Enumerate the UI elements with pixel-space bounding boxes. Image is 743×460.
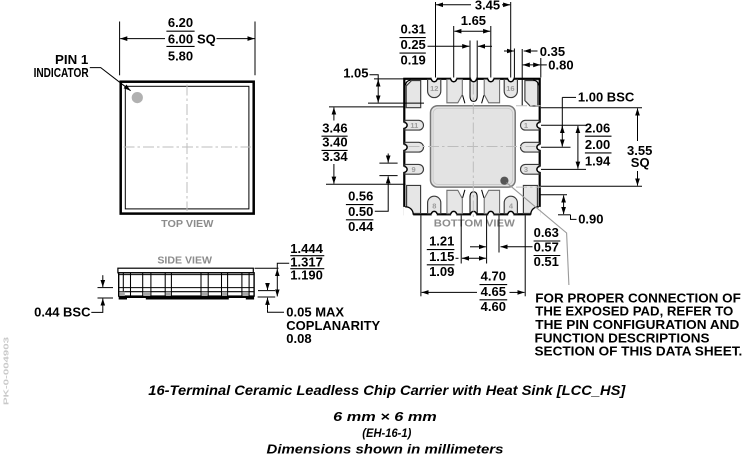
svg-text:0.31: 0.31 — [400, 22, 425, 37]
svg-text:PK-0-004903: PK-0-004903 — [2, 337, 11, 405]
svg-text:1.09: 1.09 — [429, 264, 454, 279]
svg-text:1.65: 1.65 — [461, 13, 486, 28]
svg-text:1.00 BSC: 1.00 BSC — [578, 90, 635, 105]
svg-text:2.06: 2.06 — [585, 120, 610, 135]
svg-text:SECTION OF THIS DATA SHEET.: SECTION OF THIS DATA SHEET. — [535, 344, 743, 359]
svg-text:TOP VIEW: TOP VIEW — [161, 219, 214, 230]
svg-text:0.57: 0.57 — [534, 240, 559, 255]
svg-text:2.00: 2.00 — [585, 137, 610, 152]
svg-text:16-Terminal Ceramic Leadless C: 16-Terminal Ceramic Leadless Chip Carrie… — [148, 383, 625, 398]
svg-text:0.63: 0.63 — [534, 225, 559, 240]
svg-text:SIDE VIEW: SIDE VIEW — [157, 256, 212, 267]
svg-text:3.34: 3.34 — [322, 149, 348, 164]
svg-text:3.46: 3.46 — [322, 120, 347, 135]
svg-text:0.19: 0.19 — [400, 53, 425, 68]
svg-text:12: 12 — [430, 84, 438, 93]
svg-text:3.45: 3.45 — [475, 0, 500, 12]
svg-text:16: 16 — [506, 84, 514, 93]
svg-text:SQ: SQ — [631, 155, 650, 170]
svg-text:INDICATOR: INDICATOR — [34, 65, 89, 80]
svg-text:0.50: 0.50 — [348, 204, 373, 219]
svg-text:4.70: 4.70 — [481, 269, 506, 284]
svg-text:8: 8 — [432, 201, 436, 210]
svg-text:BOTTOM VIEW: BOTTOM VIEW — [434, 219, 516, 230]
svg-text:1.15: 1.15 — [429, 249, 454, 264]
svg-text:1.94: 1.94 — [585, 154, 611, 169]
svg-text:Dimensions shown in millimeter: Dimensions shown in millimeters — [267, 443, 504, 457]
svg-text:6.00: 6.00 — [168, 32, 193, 47]
svg-text:1.21: 1.21 — [429, 234, 454, 249]
svg-text:5.80: 5.80 — [168, 48, 193, 63]
svg-text:6 mm × 6 mm: 6 mm × 6 mm — [333, 410, 437, 424]
svg-text:1.05: 1.05 — [343, 66, 368, 81]
svg-text:4.60: 4.60 — [481, 299, 506, 314]
svg-text:3: 3 — [524, 165, 528, 174]
svg-text:6.20: 6.20 — [168, 15, 193, 30]
svg-text:0.80: 0.80 — [548, 58, 573, 73]
svg-text:0.90: 0.90 — [578, 212, 603, 227]
svg-text:0.08: 0.08 — [286, 331, 311, 346]
svg-text:4.65: 4.65 — [481, 284, 506, 299]
svg-text:0.44 BSC: 0.44 BSC — [34, 305, 91, 320]
svg-text:9: 9 — [412, 165, 416, 174]
svg-text:0.51: 0.51 — [534, 254, 559, 269]
svg-text:1: 1 — [524, 121, 528, 130]
svg-text:3.40: 3.40 — [322, 135, 347, 150]
svg-text:0.56: 0.56 — [348, 189, 373, 204]
svg-text:1.190: 1.190 — [290, 268, 323, 283]
svg-text:11: 11 — [410, 121, 418, 130]
svg-text:(EH-16-1): (EH-16-1) — [362, 426, 411, 440]
svg-text:0.25: 0.25 — [400, 37, 425, 52]
svg-text:0.44: 0.44 — [348, 219, 374, 234]
svg-text:SQ: SQ — [197, 32, 216, 47]
